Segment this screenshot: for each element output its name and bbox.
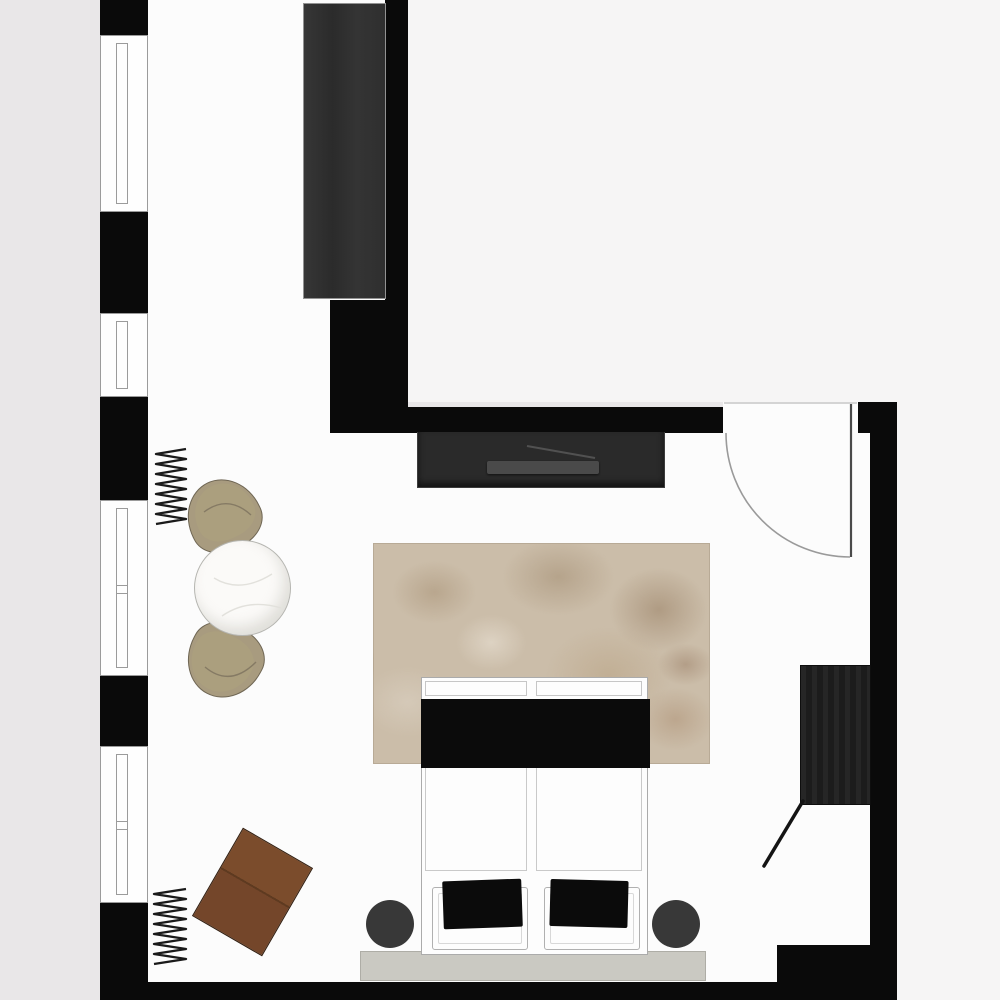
tall-wardrobe xyxy=(303,3,386,299)
window-2 xyxy=(100,313,148,397)
window-4 xyxy=(100,746,148,903)
nightstand-left xyxy=(366,900,414,948)
background-right-margin xyxy=(897,402,1000,1000)
left-wall-segment-2 xyxy=(100,212,148,313)
pillow-left xyxy=(442,879,523,930)
background-top-right xyxy=(408,0,1000,402)
tv-console xyxy=(417,432,665,488)
left-wall-segment-4 xyxy=(100,676,148,746)
wall-closet xyxy=(800,665,871,805)
television xyxy=(487,461,599,474)
floor-plan-canvas xyxy=(0,0,1000,1000)
top-wall xyxy=(330,407,723,433)
door-opening xyxy=(723,402,858,433)
duvet-left xyxy=(425,681,527,696)
left-wall-segment-3 xyxy=(100,397,148,500)
duvet-right xyxy=(536,681,642,696)
window-pane xyxy=(116,321,128,389)
double-bed xyxy=(421,677,648,955)
left-wall-segment-1 xyxy=(100,0,148,35)
window-3 xyxy=(100,500,148,676)
window-pane xyxy=(116,43,128,204)
nightstand-right xyxy=(652,900,700,948)
right-wall xyxy=(870,402,897,1000)
upper-vertical-wall xyxy=(385,0,408,310)
throw-blanket xyxy=(421,699,650,768)
round-table xyxy=(194,540,291,636)
bottom-wall xyxy=(100,982,777,1000)
window-mullion xyxy=(116,821,128,830)
bottom-right-wall-block xyxy=(777,945,897,1000)
pillow-right xyxy=(549,879,628,928)
window-1 xyxy=(100,35,148,212)
foot-bench xyxy=(360,951,706,981)
window-mullion xyxy=(116,585,128,594)
